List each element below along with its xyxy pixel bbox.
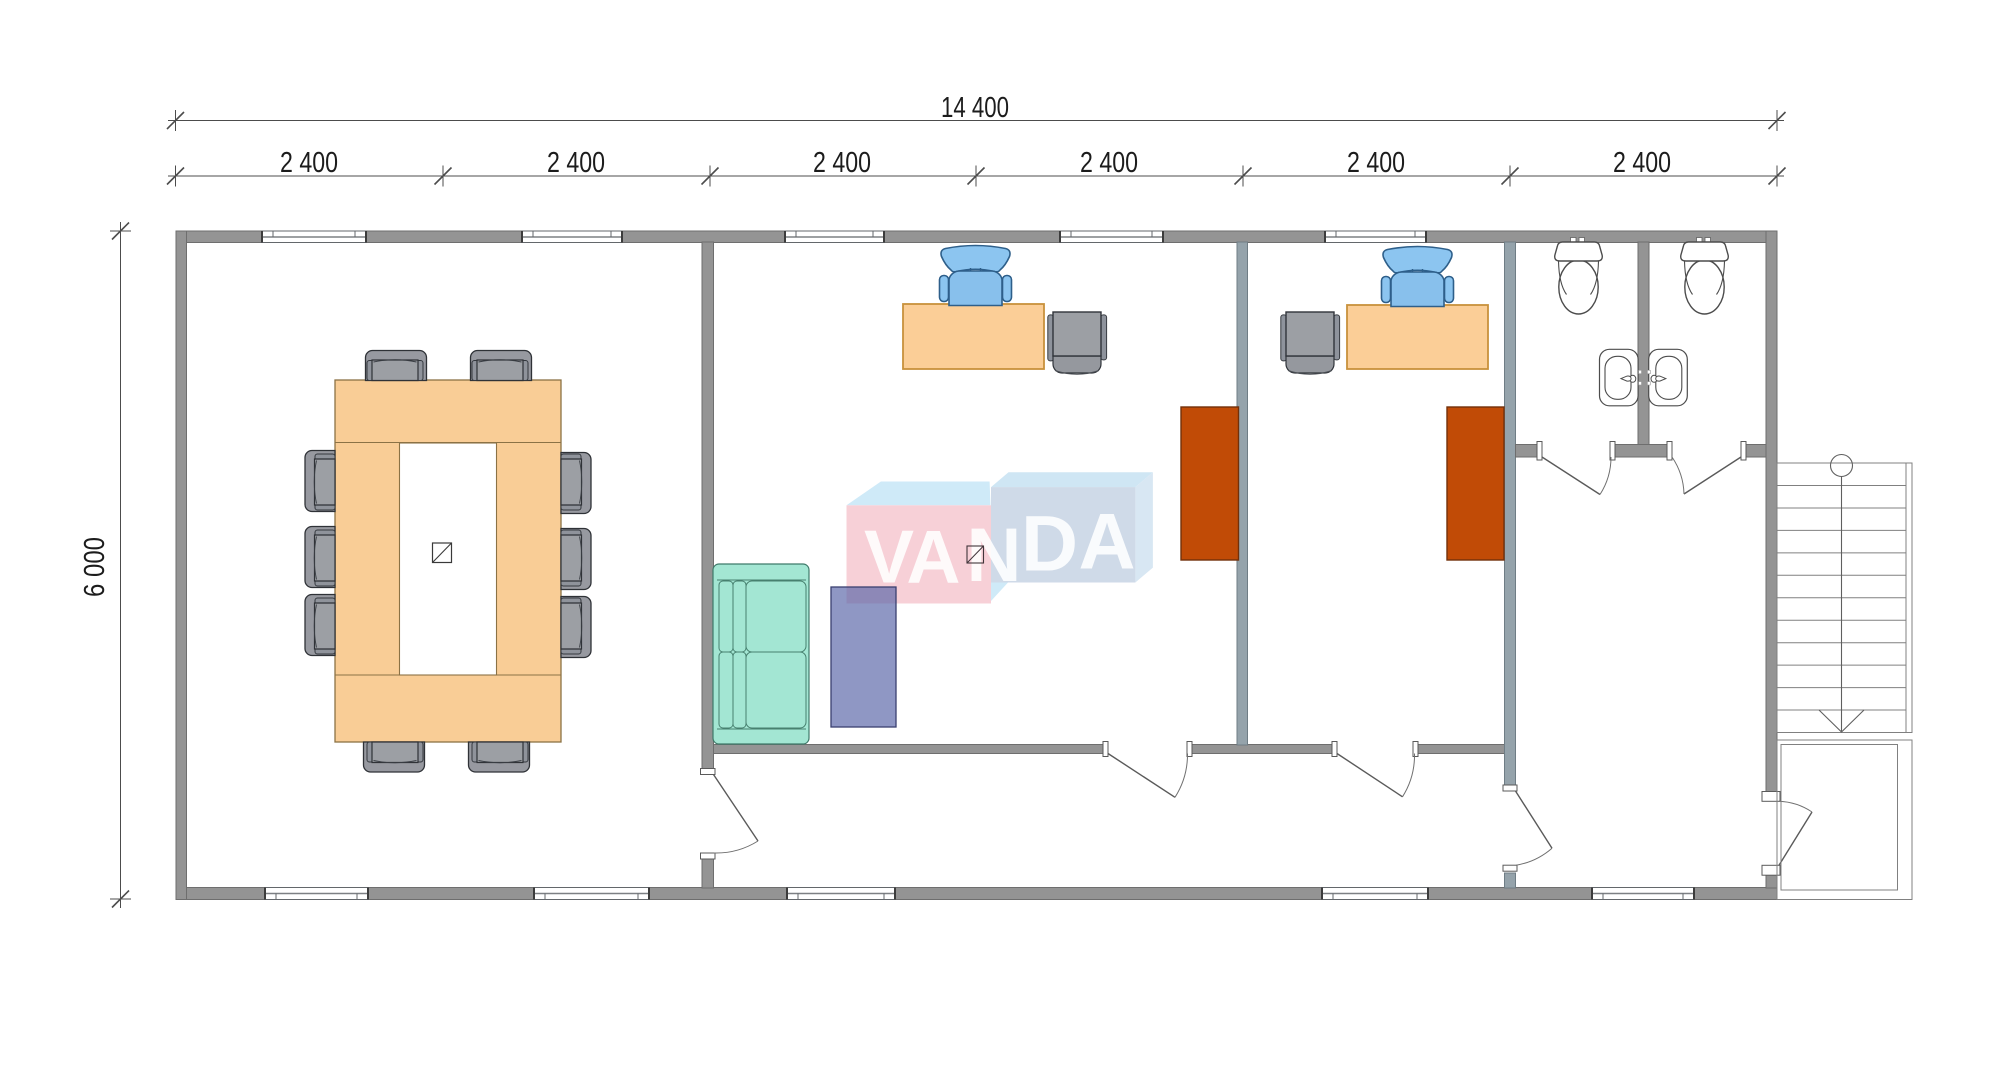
svg-text:2 400: 2 400 bbox=[280, 147, 338, 179]
svg-text:2 400: 2 400 bbox=[1347, 147, 1405, 179]
svg-text:2 400: 2 400 bbox=[1613, 147, 1671, 179]
svg-text:2 400: 2 400 bbox=[1080, 147, 1138, 179]
svg-text:6 000: 6 000 bbox=[79, 537, 111, 597]
svg-text:2 400: 2 400 bbox=[547, 147, 605, 179]
svg-text:A: A bbox=[1078, 497, 1135, 586]
svg-text:14 400: 14 400 bbox=[941, 92, 1009, 124]
svg-text:D: D bbox=[1021, 498, 1078, 587]
svg-text:A: A bbox=[906, 515, 960, 599]
svg-text:2 400: 2 400 bbox=[813, 147, 871, 179]
